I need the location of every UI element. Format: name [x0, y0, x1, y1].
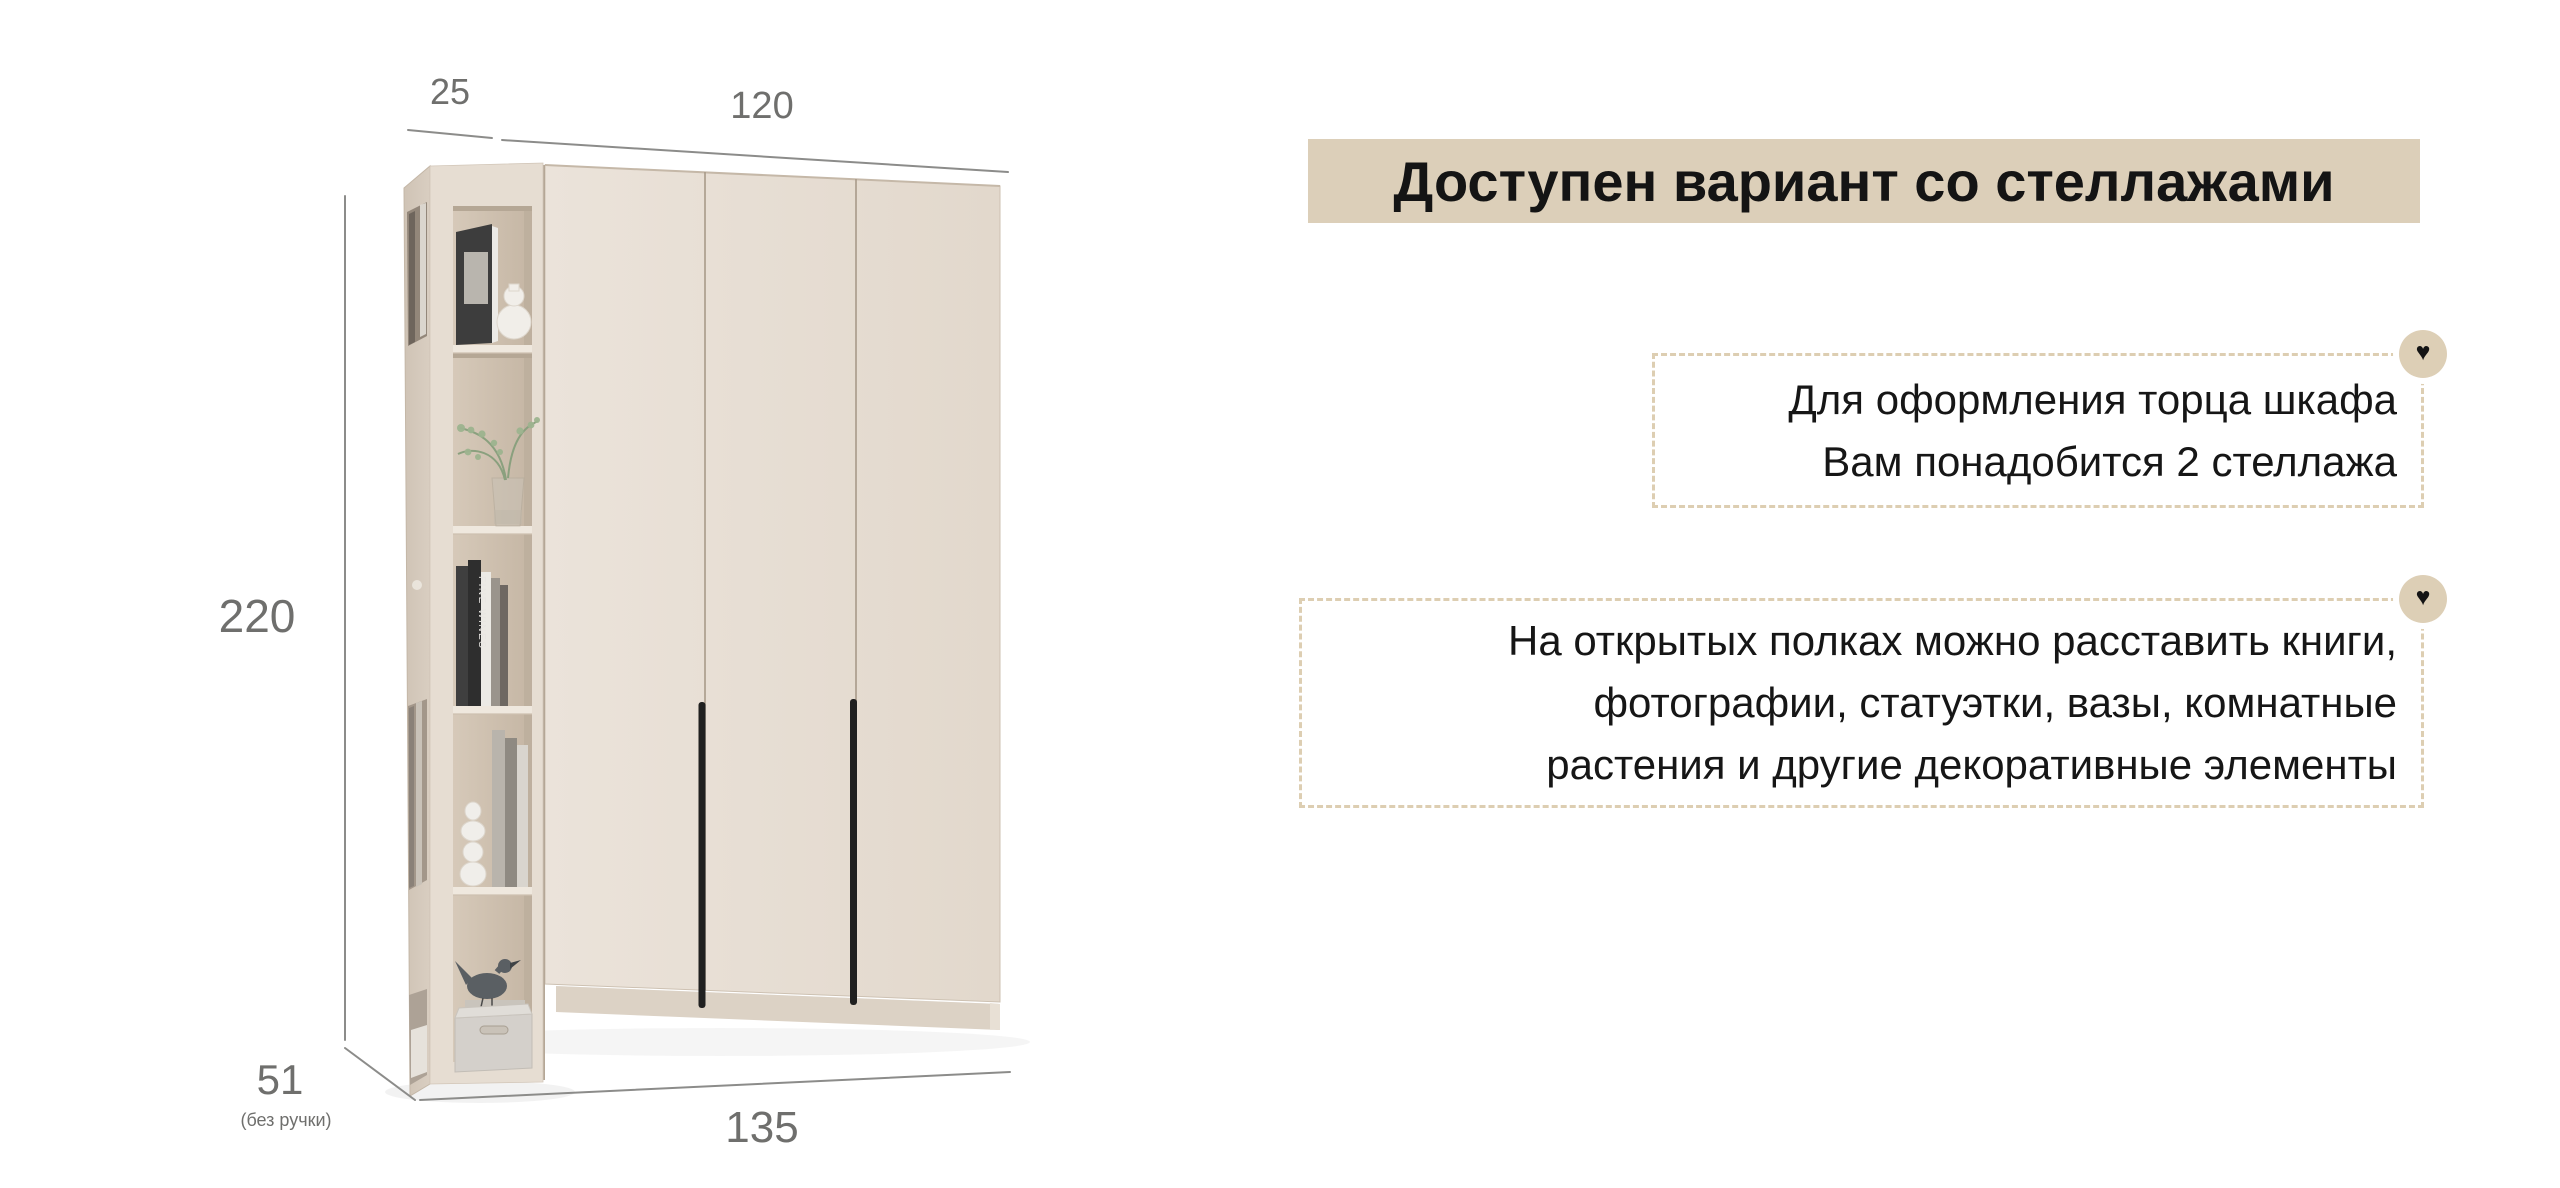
heart-badge: ♥ — [2399, 330, 2447, 378]
note-line: растения и другие декоративные элементы — [1302, 734, 2397, 796]
page-title: Доступен вариант со стеллажами — [1393, 149, 2334, 214]
note-line: На открытых полках можно расставить книг… — [1302, 610, 2397, 672]
dim-line-shelf-width — [408, 130, 492, 138]
page: FINE WINES — [0, 0, 2560, 1188]
dim-shelf-width: 25 — [430, 71, 470, 112]
plinth-right-cap — [990, 1003, 1000, 1030]
note-box-shelf-count: ♥ Для оформления торца шкафа Вам понадоб… — [1652, 353, 2424, 508]
heart-icon: ♥ — [2416, 585, 2431, 610]
wardrobe-doors — [545, 165, 1000, 1002]
dim-depth-note: (без ручки) — [240, 1110, 331, 1130]
wardrobe — [544, 165, 1000, 1080]
dim-line-depth — [345, 1048, 415, 1100]
dim-height: 220 — [219, 590, 296, 642]
book-stack — [456, 224, 498, 345]
note-line: Вам понадобится 2 стеллажа — [1655, 431, 2397, 493]
dim-total-width: 135 — [725, 1103, 798, 1152]
door-handle-right — [850, 699, 857, 1005]
title-banner: Доступен вариант со стеллажами — [1308, 139, 2420, 223]
note-line: фотографии, статуэтки, вазы, комнатные — [1302, 672, 2397, 734]
heart-icon: ♥ — [2416, 340, 2431, 365]
heart-badge: ♥ — [2399, 575, 2447, 623]
note-box-open-shelves: ♥ На открытых полках можно расставить кн… — [1299, 598, 2424, 808]
storage-box — [455, 1004, 532, 1072]
door-handle-left — [699, 702, 706, 1008]
dim-wardrobe-width: 120 — [730, 85, 793, 127]
note-line: Для оформления торца шкафа — [1655, 369, 2397, 431]
book-spine-label: FINE WINES — [476, 576, 487, 649]
dim-depth: 51 — [257, 1056, 304, 1103]
shelf-unit: FINE WINES — [404, 163, 543, 1096]
furniture-diagram: FINE WINES — [0, 0, 1250, 1188]
book-stack-2 — [492, 730, 528, 887]
